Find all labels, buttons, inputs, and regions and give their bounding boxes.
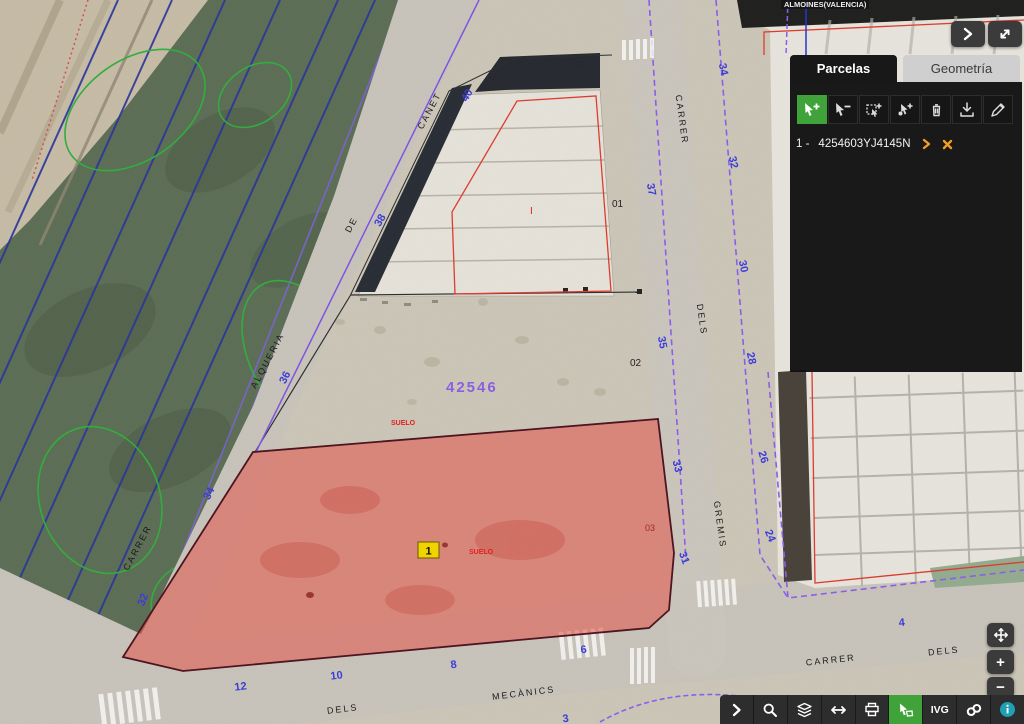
suelo-label: SUELO: [469, 549, 494, 556]
parcel-tools: [797, 95, 1022, 124]
pencil-icon: [989, 101, 1007, 118]
tab-geometria[interactable]: Geometría: [903, 55, 1020, 82]
block-number-label: 42546: [446, 379, 498, 396]
house-number: 37: [644, 182, 658, 196]
collapse-panel-button[interactable]: [951, 21, 985, 47]
zoom-in-button[interactable]: +: [987, 650, 1014, 674]
trash-icon: [927, 101, 945, 118]
fullscreen-button[interactable]: [988, 21, 1022, 47]
printer-icon: [864, 702, 880, 717]
house-number: 28: [744, 351, 758, 365]
house-number: 32: [726, 155, 740, 169]
pan-move-icon: [993, 627, 1009, 643]
rectangle-plus-icon: [865, 101, 883, 118]
pan-button[interactable]: [987, 623, 1014, 647]
suelo-label: SUELO: [391, 420, 416, 427]
parcel-index: 1 -: [796, 138, 809, 150]
toolbar-print-button[interactable]: [855, 695, 889, 724]
bottom-toolbar: IVG: [720, 695, 1024, 724]
toolbar-select-parcels-button[interactable]: [888, 695, 922, 724]
expand-diagonal-icon: [997, 26, 1013, 42]
arrows-horizontal-icon: [830, 704, 847, 716]
cursor-minus-icon: [834, 101, 852, 118]
edit-geometry-button[interactable]: [983, 95, 1013, 124]
toolbar-measure-button[interactable]: [821, 695, 855, 724]
parcel-reference: 4254603YJ4145N: [818, 138, 910, 150]
toolbar-search-button[interactable]: [753, 695, 787, 724]
minus-icon: −: [996, 680, 1005, 695]
point-plus-icon: [896, 101, 914, 118]
ivg-label: IVG: [931, 704, 949, 716]
add-parcel-select-button[interactable]: [797, 95, 827, 124]
remove-parcel-select-button[interactable]: [828, 95, 858, 124]
subparcel-01-label: 01: [612, 199, 624, 210]
tab-parcelas[interactable]: Parcelas: [790, 55, 897, 82]
selected-parcel-marker: 1: [418, 542, 439, 558]
toolbar-info-button[interactable]: [990, 695, 1024, 724]
layers-icon: [796, 702, 813, 718]
open-parcel-button[interactable]: [921, 138, 932, 150]
panel-tabs: Parcelas Geometría: [790, 55, 1022, 82]
parcel-list-item[interactable]: 1 - 4254603YJ4145N: [796, 138, 1022, 150]
download-icon: [958, 101, 976, 118]
svg-text:1: 1: [425, 546, 431, 558]
subparcel-i-label: I: [530, 206, 533, 217]
clear-selection-button[interactable]: [921, 95, 951, 124]
panel-body: 1 - 4254603YJ4145N: [790, 82, 1022, 372]
house-number: 10: [330, 669, 344, 682]
toolbar-layers-button[interactable]: [787, 695, 821, 724]
chevron-right-icon: [731, 703, 742, 717]
chevron-right-icon: [921, 138, 932, 150]
toolbar-cartography-button[interactable]: [956, 695, 990, 724]
close-x-icon: [942, 139, 953, 150]
rectangle-select-button[interactable]: [859, 95, 889, 124]
subparcel-03-label: 03: [645, 523, 655, 533]
toolbar-expand-button[interactable]: [720, 695, 753, 724]
subparcel-02-label: 02: [630, 358, 642, 369]
download-selection-button[interactable]: [952, 95, 982, 124]
plus-icon: +: [996, 655, 1005, 670]
cursor-plus-icon: [803, 101, 821, 118]
remove-parcel-button[interactable]: [942, 139, 953, 150]
house-number: 12: [234, 680, 248, 693]
toolbar-ivg-button[interactable]: IVG: [922, 695, 956, 724]
point-select-button[interactable]: [890, 95, 920, 124]
search-icon: [762, 702, 778, 718]
chevron-right-icon: [962, 27, 974, 41]
parcelas-panel: Parcelas Geometría: [790, 55, 1022, 372]
parcel-select-icon: [897, 702, 914, 718]
linked-rings-icon: [965, 702, 983, 718]
house-number: 30: [736, 259, 750, 273]
catastro-map-app: CANET DE ALQUERIA CARRER CARRER DELS GRE…: [0, 0, 1024, 724]
info-icon: [999, 701, 1016, 718]
municipality-label: ALMOINES(VALENCIA): [781, 0, 869, 9]
house-number: 35: [655, 335, 669, 349]
